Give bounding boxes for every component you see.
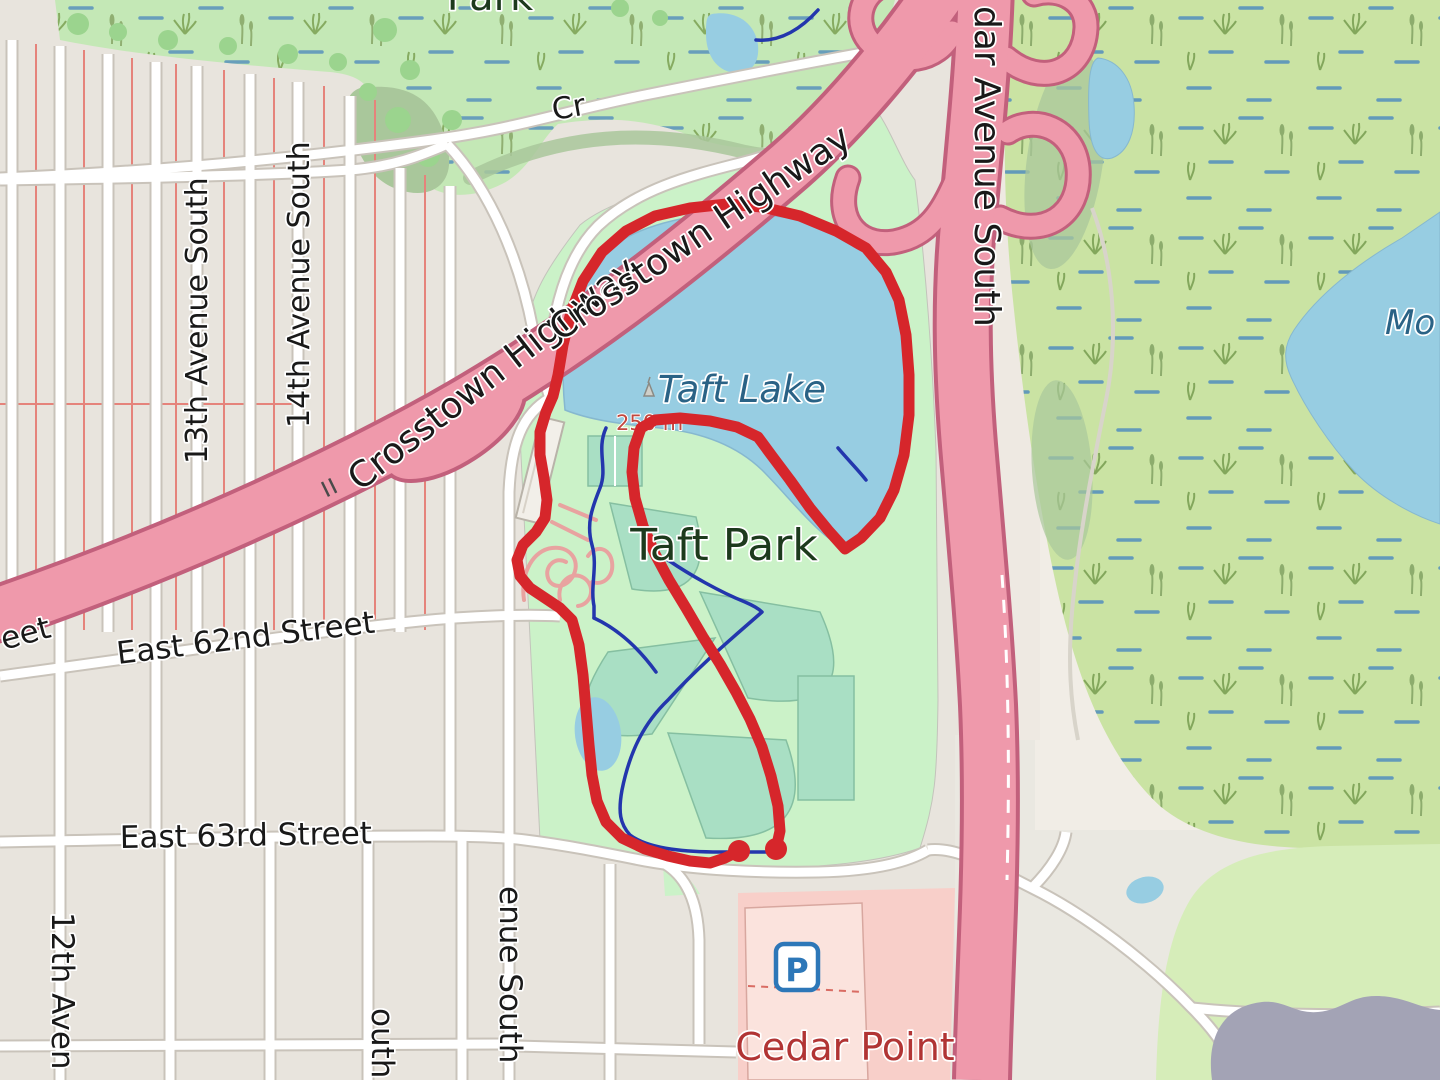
street-63-label: East 63rd Street (120, 816, 373, 856)
avenue-13-label: 13th Avenue South (180, 177, 215, 464)
sports-court (798, 676, 854, 800)
map-screenshot: 250 m P Park Cr Crosstown Highway Crosst… (0, 0, 1440, 1080)
service-road-label: Cr (549, 88, 589, 128)
cedar-point-label: Cedar Point (735, 1025, 954, 1069)
taft-lake-label: Taft Lake (658, 368, 826, 411)
gps-route-end-dot (765, 838, 787, 860)
taft-park-label: Taft Park (629, 520, 818, 571)
top-park-label-partial: Park (447, 0, 534, 20)
avenue-partial-outh-label: outh (364, 1008, 400, 1078)
map-canvas[interactable]: 250 m P Park Cr Crosstown Highway Crosst… (0, 0, 1440, 1080)
avenue-partial-enue-label: enue South (492, 886, 528, 1063)
parking-icon-letter: P (785, 951, 808, 989)
cedar-avenue-label: dar Avenue South (966, 6, 1007, 327)
gps-route-start-dot (728, 840, 750, 862)
east-lake-label-partial: Mo (1385, 303, 1435, 343)
parking-icon: P (776, 944, 818, 990)
avenue-12-label: 12th Aven (44, 912, 80, 1070)
avenue-14-label: 14th Avenue South (282, 141, 317, 428)
